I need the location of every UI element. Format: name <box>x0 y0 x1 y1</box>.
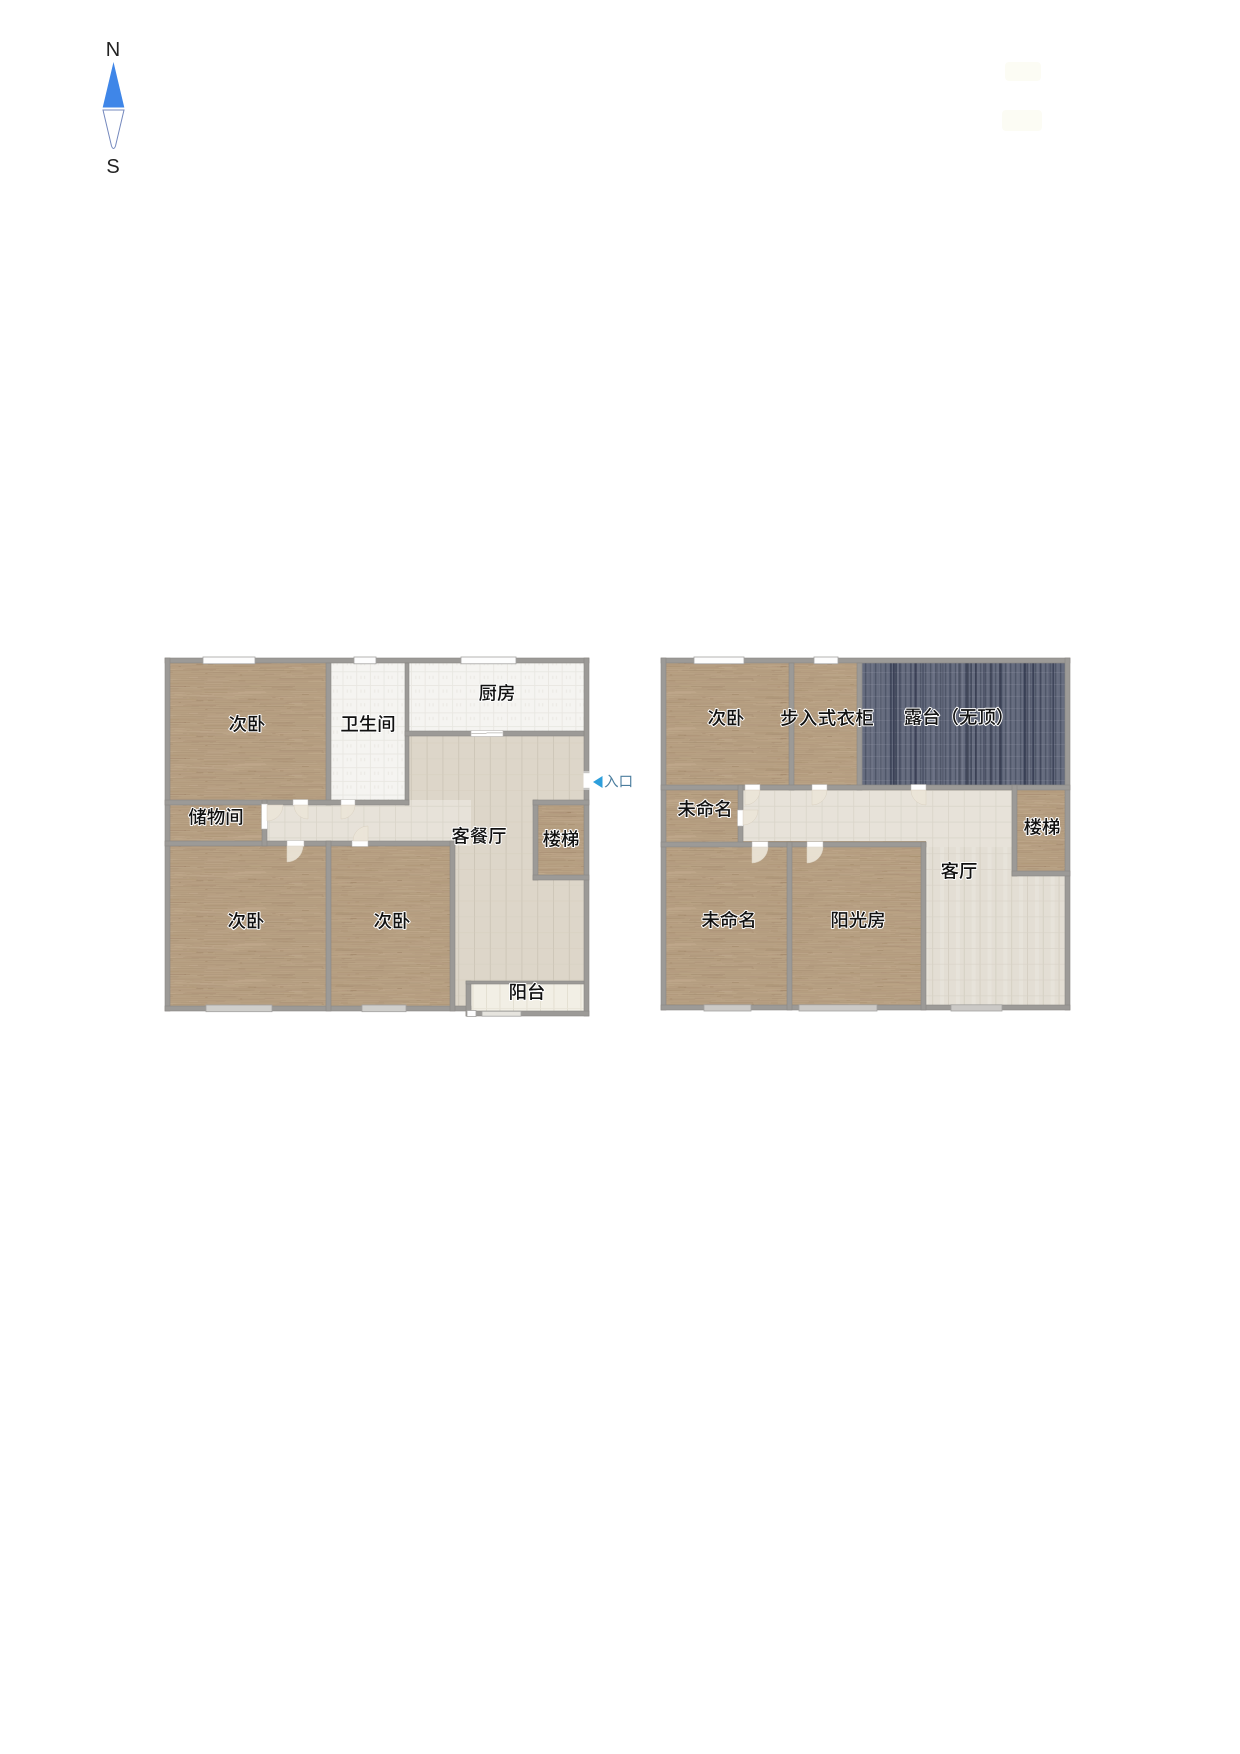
svg-text:S: S <box>106 156 119 178</box>
svg-text:N: N <box>106 39 120 61</box>
